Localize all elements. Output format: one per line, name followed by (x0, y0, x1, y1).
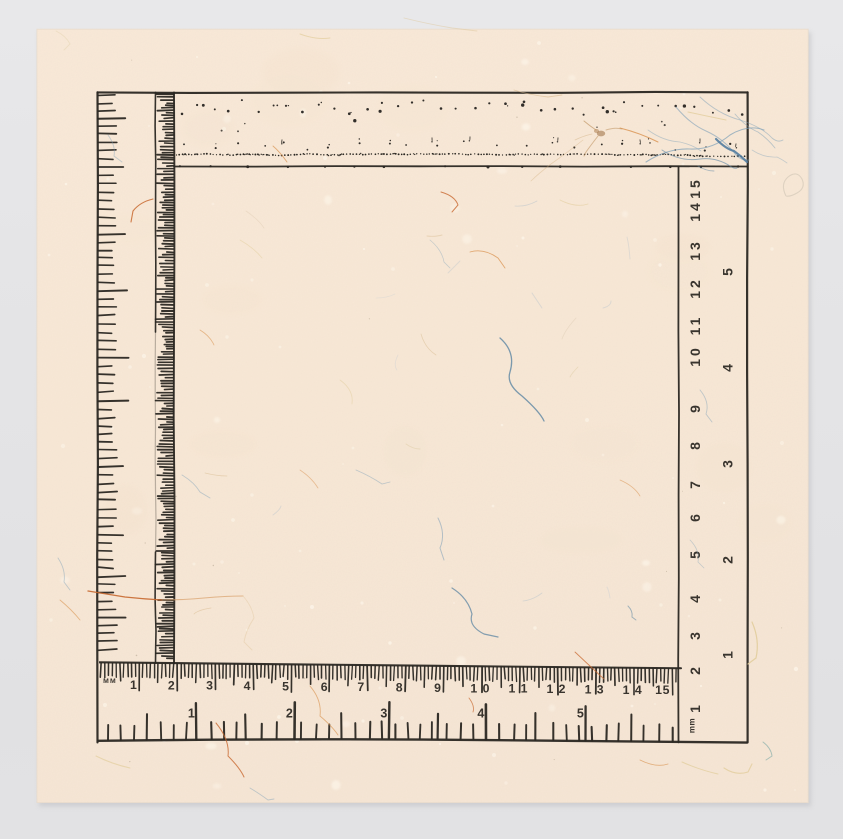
svg-text:3: 3 (687, 632, 703, 640)
svg-text:15: 15 (687, 177, 703, 199)
svg-text:13: 13 (687, 239, 703, 261)
svg-text:1: 1 (585, 683, 592, 697)
svg-text:3: 3 (380, 707, 387, 721)
svg-text:11: 11 (687, 315, 703, 336)
svg-text:2: 2 (168, 678, 175, 692)
svg-text:1: 1 (687, 705, 703, 713)
svg-text:mm: mm (688, 718, 697, 733)
svg-text:1: 1 (546, 682, 553, 696)
svg-text:6: 6 (687, 514, 703, 522)
svg-text:MM: MM (103, 678, 117, 685)
svg-text:2: 2 (559, 682, 566, 696)
svg-text:2: 2 (720, 556, 736, 564)
svg-text:9: 9 (434, 681, 441, 695)
svg-text:4: 4 (477, 707, 484, 721)
svg-text:4: 4 (720, 364, 736, 372)
svg-text:4: 4 (635, 683, 642, 697)
svg-text:12: 12 (687, 277, 703, 299)
svg-text:1: 1 (130, 678, 137, 692)
svg-text:3: 3 (720, 460, 736, 468)
svg-text:1: 1 (470, 681, 477, 695)
svg-text:5: 5 (282, 680, 289, 694)
svg-text:7: 7 (687, 481, 703, 489)
svg-text:1: 1 (720, 651, 736, 659)
svg-text:8: 8 (396, 681, 403, 695)
svg-text:9: 9 (687, 405, 703, 413)
svg-text:5: 5 (577, 707, 584, 721)
svg-text:1: 1 (188, 707, 195, 721)
svg-text:6: 6 (321, 680, 328, 694)
svg-text:2: 2 (286, 707, 293, 721)
svg-text:10: 10 (687, 345, 703, 367)
svg-text:1: 1 (508, 682, 515, 696)
svg-text:5: 5 (663, 683, 670, 697)
svg-text:14: 14 (687, 200, 703, 222)
svg-text:1: 1 (623, 683, 630, 697)
svg-text:7: 7 (357, 680, 364, 694)
svg-text:3: 3 (597, 683, 604, 697)
svg-text:0: 0 (483, 681, 490, 695)
svg-text:4: 4 (687, 595, 703, 603)
svg-text:2: 2 (687, 667, 703, 675)
svg-text:5: 5 (720, 268, 736, 276)
svg-text:8: 8 (687, 442, 703, 450)
svg-text:3: 3 (206, 679, 213, 693)
svg-text:1: 1 (655, 683, 662, 697)
svg-text:4: 4 (244, 679, 251, 693)
svg-text:1: 1 (521, 682, 528, 696)
svg-text:5: 5 (687, 551, 703, 559)
